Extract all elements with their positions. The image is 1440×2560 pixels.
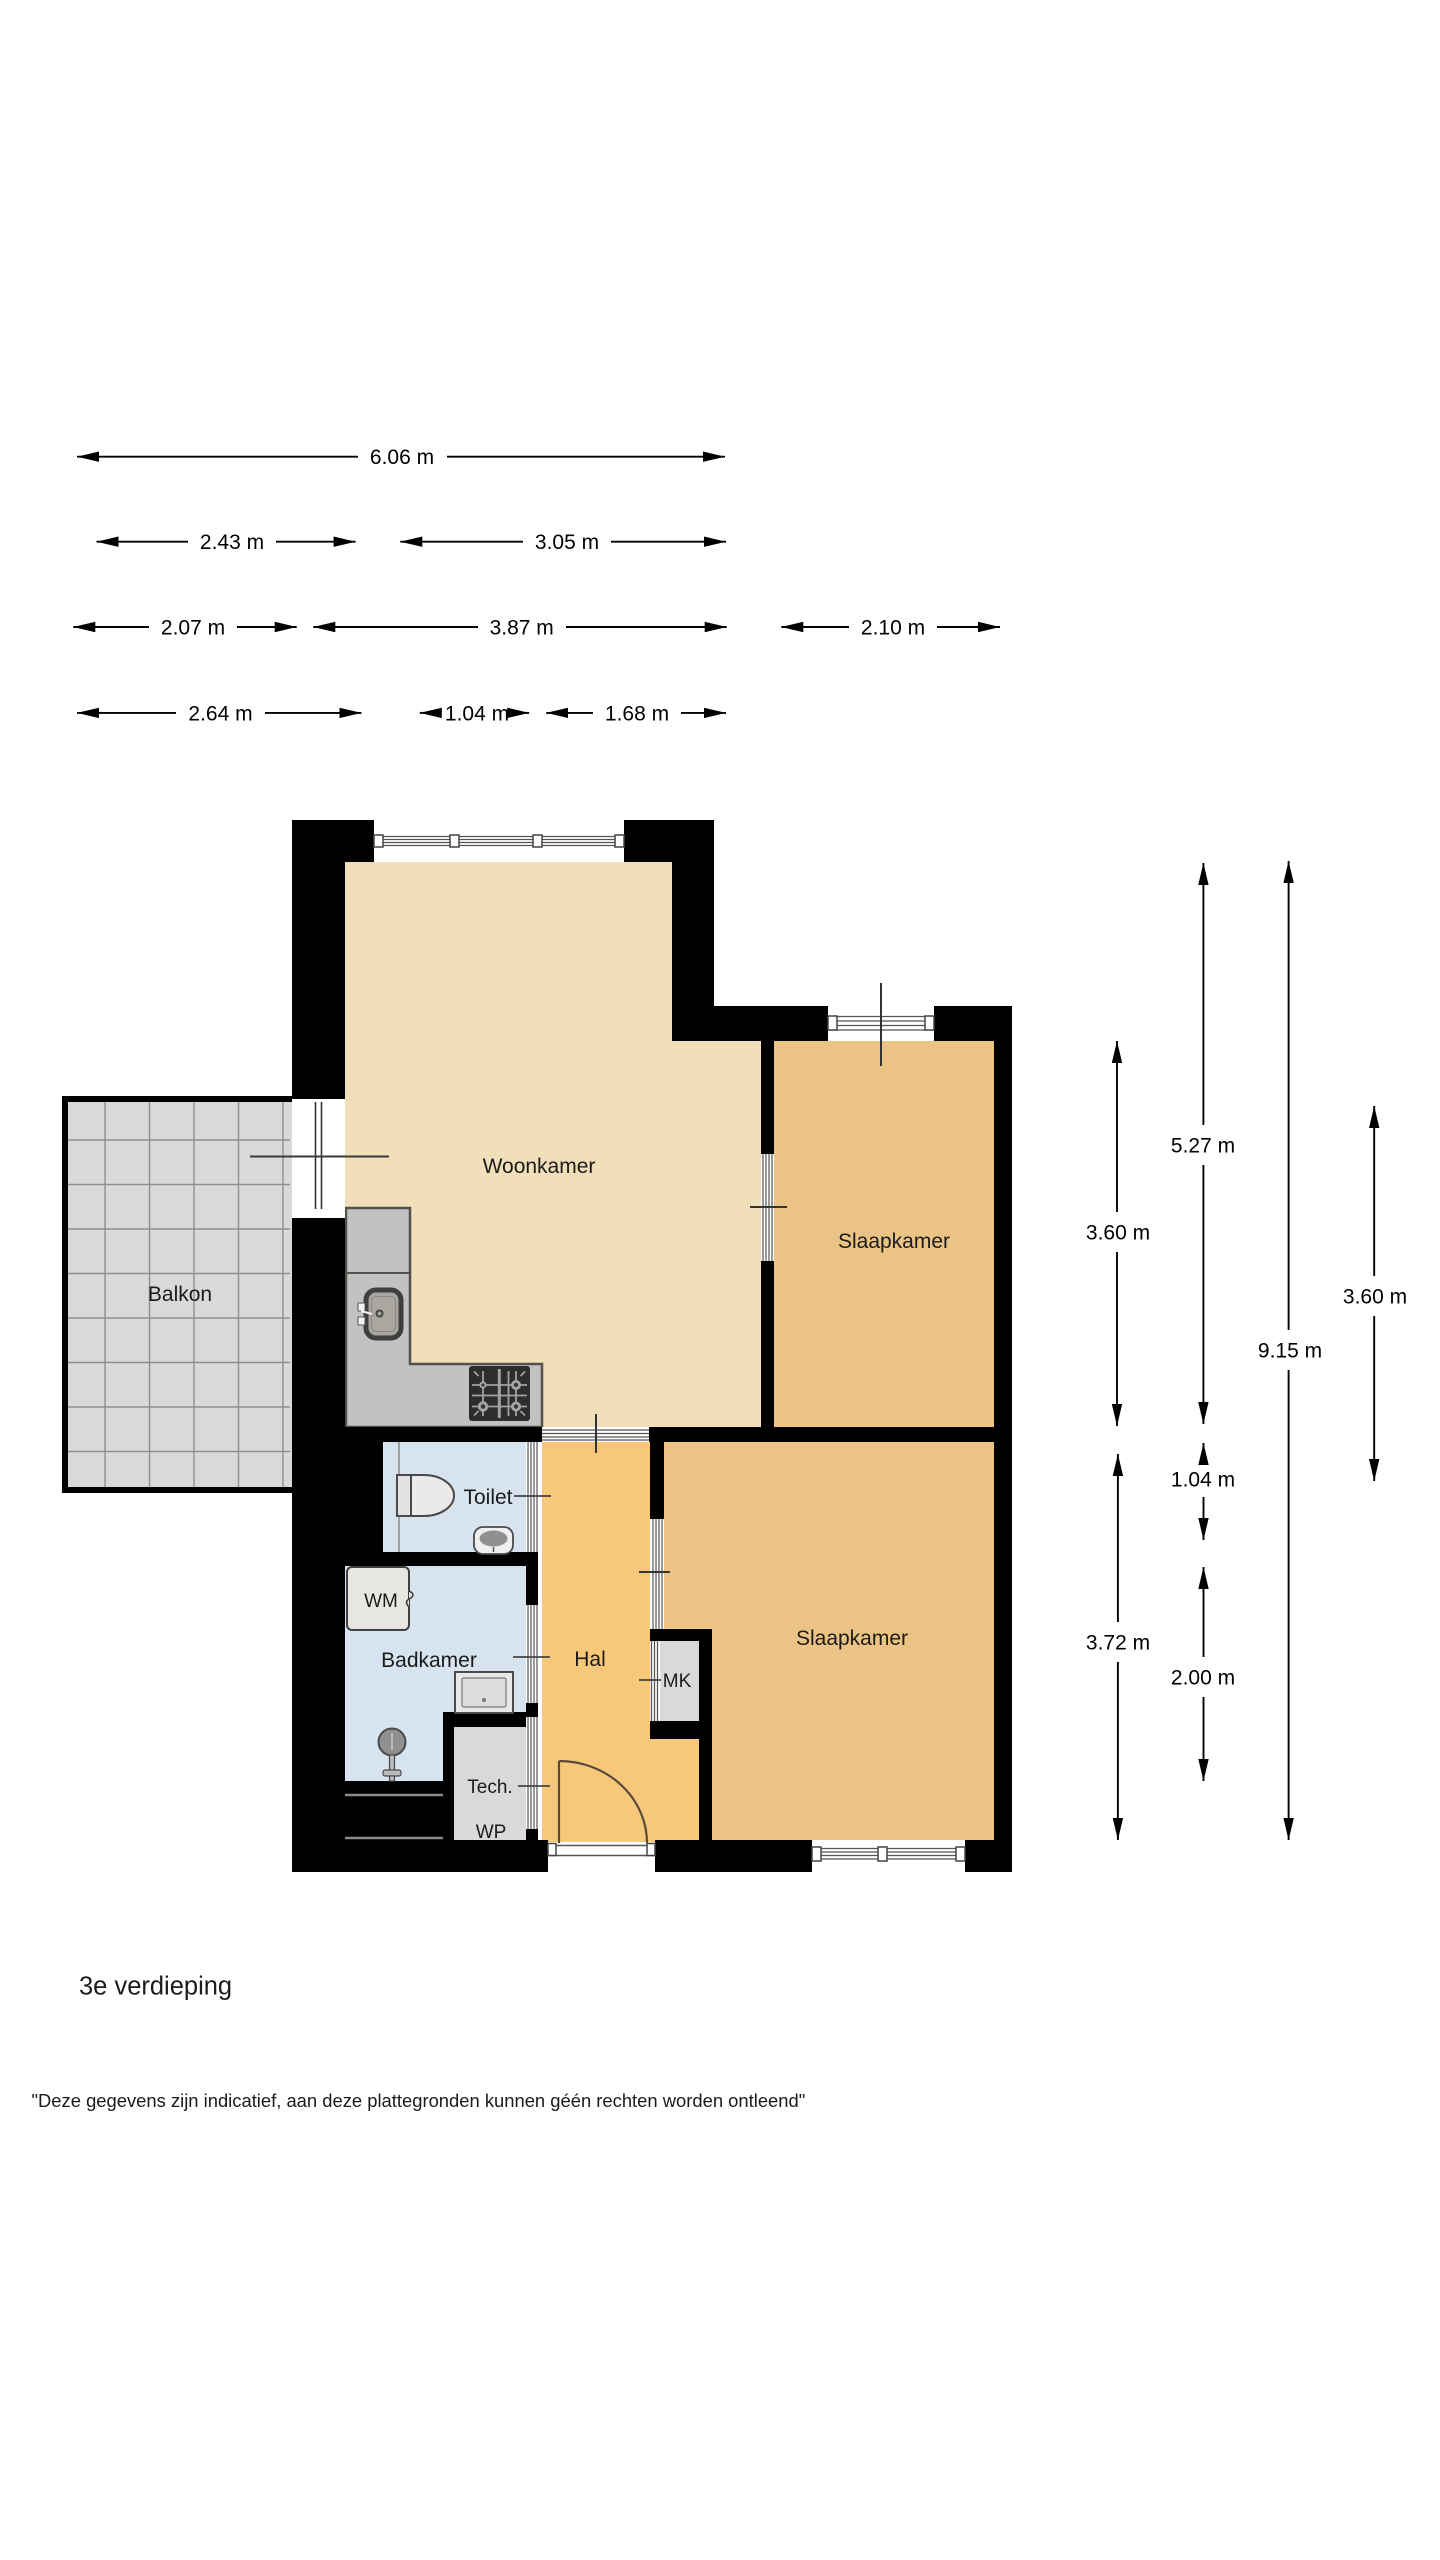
svg-text:Balkon: Balkon — [148, 1283, 212, 1306]
svg-text:Slaapkamer: Slaapkamer — [796, 1627, 908, 1650]
svg-text:1.68 m: 1.68 m — [605, 703, 669, 726]
svg-text:Tech.: Tech. — [467, 1777, 512, 1798]
svg-text:9.15 m: 9.15 m — [1258, 1340, 1322, 1363]
svg-text:2.07 m: 2.07 m — [161, 617, 225, 640]
svg-text:2.10 m: 2.10 m — [861, 617, 925, 640]
svg-text:3.05 m: 3.05 m — [535, 531, 599, 554]
svg-text:Badkamer: Badkamer — [381, 1649, 477, 1672]
svg-text:3.60 m: 3.60 m — [1343, 1286, 1407, 1309]
svg-text:3.72 m: 3.72 m — [1086, 1632, 1150, 1655]
svg-text:Toilet: Toilet — [463, 1486, 512, 1509]
svg-text:3e verdieping: 3e verdieping — [79, 1973, 232, 2001]
svg-text:"Deze gegevens zijn indicatief: "Deze gegevens zijn indicatief, aan deze… — [32, 2090, 806, 2111]
svg-text:1.04 m: 1.04 m — [1171, 1469, 1235, 1492]
svg-text:2.64 m: 2.64 m — [188, 703, 252, 726]
svg-text:5.27 m: 5.27 m — [1171, 1135, 1235, 1158]
svg-text:2.00 m: 2.00 m — [1171, 1667, 1235, 1690]
svg-text:1.04 m: 1.04 m — [445, 703, 509, 726]
svg-text:WM: WM — [364, 1591, 398, 1612]
svg-text:3.87 m: 3.87 m — [490, 617, 554, 640]
svg-text:MK: MK — [663, 1671, 692, 1692]
svg-text:2.43 m: 2.43 m — [200, 531, 264, 554]
svg-text:6.06 m: 6.06 m — [370, 446, 434, 469]
svg-text:WP: WP — [476, 1822, 507, 1843]
svg-text:Hal: Hal — [574, 1648, 606, 1671]
svg-text:Woonkamer: Woonkamer — [483, 1155, 596, 1178]
svg-text:3.60 m: 3.60 m — [1086, 1222, 1150, 1245]
svg-text:Slaapkamer: Slaapkamer — [838, 1230, 950, 1253]
